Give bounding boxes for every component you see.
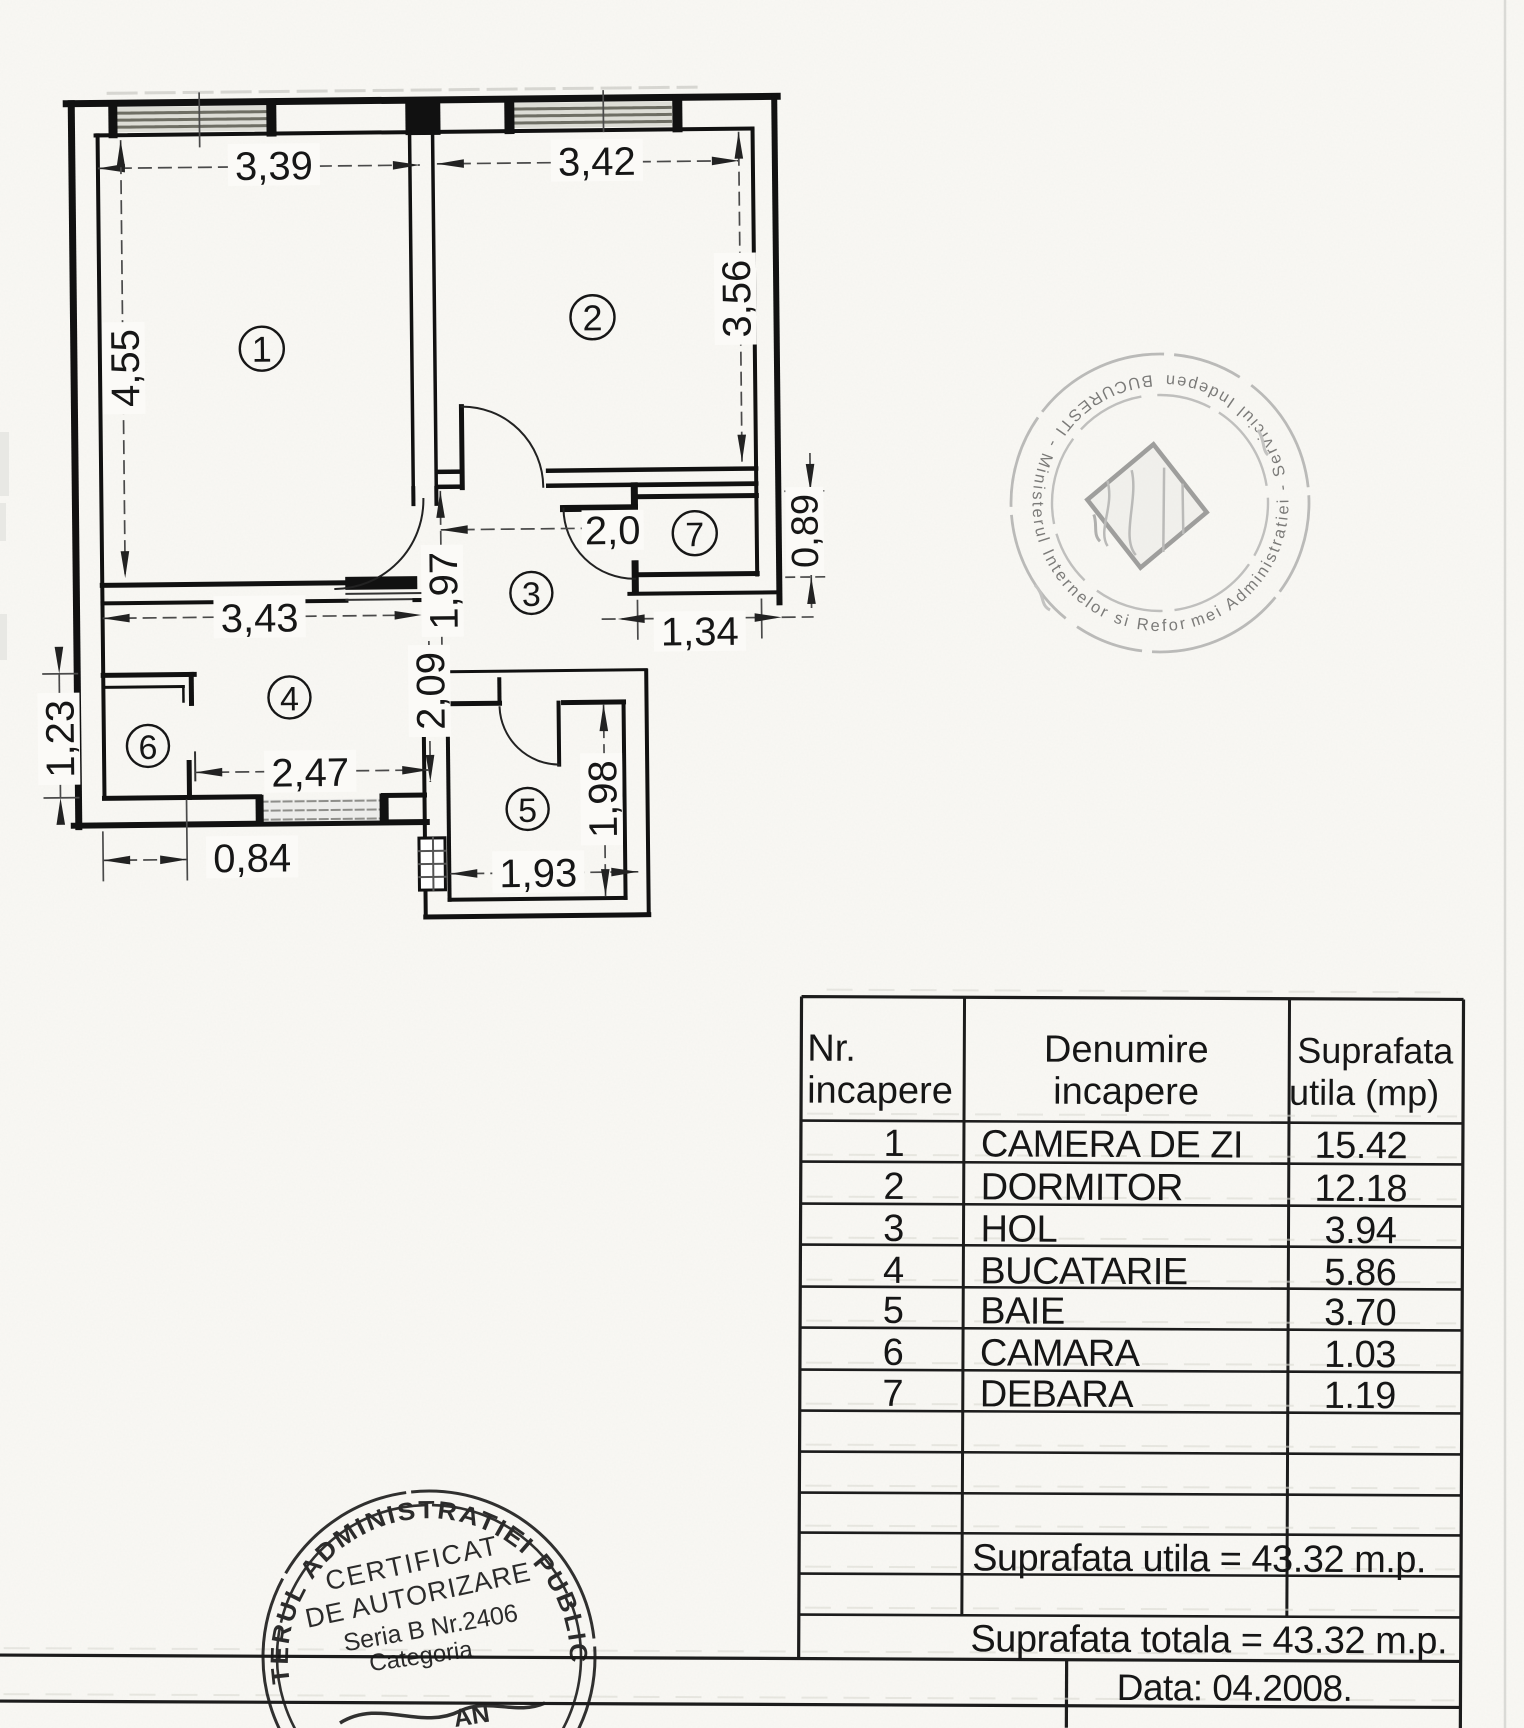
svg-text:4: 4 bbox=[280, 680, 299, 718]
svg-text:1.19: 1.19 bbox=[1324, 1375, 1396, 1417]
svg-text:1: 1 bbox=[252, 329, 272, 370]
svg-text:CAMARA: CAMARA bbox=[980, 1332, 1141, 1375]
svg-text:2: 2 bbox=[582, 297, 602, 338]
svg-text:2,47: 2,47 bbox=[271, 751, 349, 796]
svg-text:1.03: 1.03 bbox=[1324, 1334, 1396, 1376]
svg-text:utila (mp): utila (mp) bbox=[1289, 1072, 1439, 1114]
svg-text:0,89: 0,89 bbox=[784, 494, 827, 568]
svg-text:3,43: 3,43 bbox=[220, 596, 298, 641]
svg-text:AN: AN bbox=[452, 1700, 492, 1728]
svg-text:6: 6 bbox=[138, 729, 157, 767]
svg-text:3: 3 bbox=[522, 576, 541, 614]
svg-text:2,09: 2,09 bbox=[409, 652, 454, 730]
svg-text:1,34: 1,34 bbox=[661, 610, 739, 655]
svg-text:1,93: 1,93 bbox=[499, 851, 577, 896]
svg-text:Nr.: Nr. bbox=[807, 1028, 856, 1070]
svg-text:5: 5 bbox=[883, 1290, 904, 1332]
svg-text:3.94: 3.94 bbox=[1324, 1210, 1397, 1252]
svg-text:5: 5 bbox=[518, 792, 537, 830]
svg-text:BUCATARIE: BUCATARIE bbox=[980, 1250, 1188, 1293]
svg-text:Data: 04.2008.: Data: 04.2008. bbox=[1117, 1667, 1353, 1709]
svg-text:3.70: 3.70 bbox=[1324, 1292, 1396, 1334]
svg-text:DEBARA: DEBARA bbox=[980, 1373, 1135, 1416]
svg-text:Suprafata totala = 43.32 m.p.: Suprafata totala = 43.32 m.p. bbox=[970, 1618, 1447, 1662]
svg-text:0,84: 0,84 bbox=[213, 836, 291, 881]
svg-text:15.42: 15.42 bbox=[1315, 1125, 1408, 1167]
svg-text:3,56: 3,56 bbox=[715, 260, 760, 338]
svg-text:incapere: incapere bbox=[807, 1070, 953, 1113]
svg-text:7: 7 bbox=[882, 1373, 903, 1415]
svg-text:5.86: 5.86 bbox=[1324, 1252, 1396, 1294]
svg-text:CAMERA DE ZI: CAMERA DE ZI bbox=[981, 1123, 1243, 1166]
svg-text:3,39: 3,39 bbox=[235, 144, 313, 189]
svg-text:2: 2 bbox=[883, 1166, 904, 1208]
svg-text:3,42: 3,42 bbox=[558, 140, 636, 185]
svg-text:4,55: 4,55 bbox=[104, 329, 149, 407]
svg-text:4: 4 bbox=[883, 1250, 904, 1292]
svg-text:1: 1 bbox=[883, 1123, 904, 1165]
svg-text:DORMITOR: DORMITOR bbox=[981, 1166, 1183, 1209]
svg-text:12.18: 12.18 bbox=[1314, 1168, 1407, 1210]
svg-text:3: 3 bbox=[883, 1208, 904, 1250]
svg-text:6: 6 bbox=[883, 1332, 904, 1374]
svg-text:Denumire: Denumire bbox=[1044, 1029, 1209, 1072]
svg-text:BAIE: BAIE bbox=[980, 1290, 1065, 1332]
svg-text:2,0: 2,0 bbox=[585, 509, 641, 554]
svg-text:1,97: 1,97 bbox=[422, 552, 467, 630]
svg-text:HOL: HOL bbox=[980, 1208, 1057, 1250]
svg-text:incapere: incapere bbox=[1053, 1071, 1199, 1114]
svg-text:1,98: 1,98 bbox=[581, 760, 626, 838]
svg-text:Suprafata: Suprafata bbox=[1297, 1030, 1454, 1072]
svg-text:7: 7 bbox=[685, 516, 704, 554]
svg-text:Suprafata utila = 43.32 m.p.: Suprafata utila = 43.32 m.p. bbox=[972, 1537, 1426, 1581]
svg-text:1,23: 1,23 bbox=[38, 700, 83, 778]
